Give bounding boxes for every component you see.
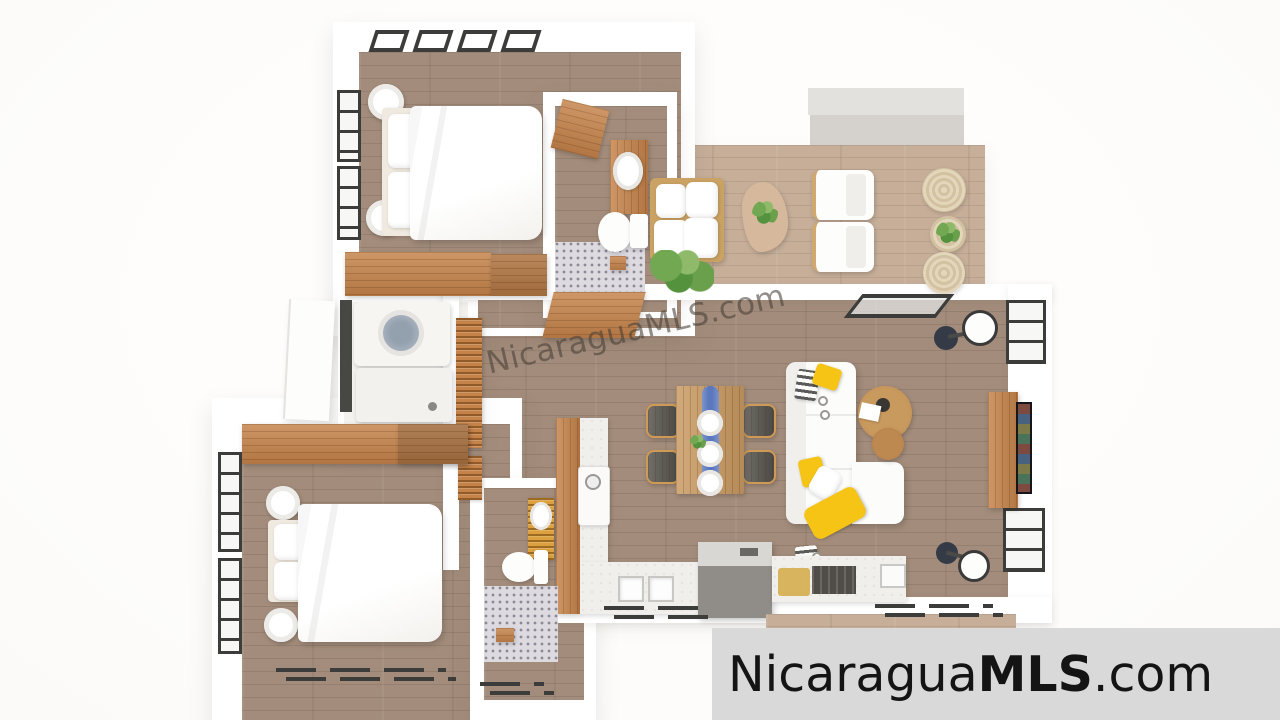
laundry-door-frame bbox=[340, 300, 352, 412]
bed1-duvet bbox=[410, 106, 542, 240]
window-living-right-lower bbox=[1003, 508, 1045, 572]
sink bbox=[530, 502, 552, 530]
toilet-tank bbox=[534, 550, 548, 584]
floor-lamp-shade bbox=[958, 550, 990, 582]
window-living-bottom bbox=[875, 604, 993, 608]
sink bbox=[613, 152, 643, 190]
kitchen-sink bbox=[618, 576, 644, 602]
plate bbox=[697, 410, 723, 436]
shower-floor bbox=[484, 586, 558, 662]
bath-accessory bbox=[610, 256, 626, 270]
bed2-duvet bbox=[298, 504, 442, 642]
logo-mls: MLS bbox=[978, 646, 1093, 703]
window-bedroom2-left-upper bbox=[218, 452, 242, 552]
skylight-window-icon bbox=[412, 30, 453, 52]
floor-plan-render: NicaraguaMLS.com NicaraguaMLS.com bbox=[0, 0, 1280, 720]
site-logo: NicaraguaMLS.com bbox=[712, 628, 1280, 720]
daybed-cushion bbox=[656, 184, 686, 218]
logo-suffix: .com bbox=[1093, 646, 1213, 703]
wardrobe-dark-section bbox=[398, 424, 468, 464]
skylight-window-icon bbox=[456, 30, 497, 52]
wicker-pouf bbox=[923, 252, 965, 294]
daybed-cushion bbox=[686, 182, 718, 218]
island-slot bbox=[740, 548, 758, 556]
table-plant bbox=[752, 200, 778, 226]
kitchen-sink bbox=[648, 576, 674, 602]
window-kitchen-bottom bbox=[604, 606, 700, 610]
dining-chair-seat bbox=[646, 404, 680, 438]
window-bathroom2-bottom bbox=[480, 682, 544, 686]
bath-accessory bbox=[496, 628, 514, 642]
nightstand bbox=[266, 486, 300, 520]
window-bedroom2-bottom bbox=[276, 668, 446, 672]
dresser bbox=[345, 252, 491, 296]
floor-lamp-base bbox=[934, 326, 958, 350]
toilet-tank bbox=[630, 214, 648, 248]
window-bedroom2-left-lower bbox=[218, 558, 242, 654]
plate bbox=[697, 470, 723, 496]
toilet-bowl bbox=[502, 552, 536, 582]
dining-chair-seat bbox=[646, 450, 680, 484]
dining-chair-seat bbox=[742, 450, 776, 484]
stove-burner bbox=[585, 474, 601, 490]
tv-screen bbox=[1016, 402, 1032, 494]
sofa-button bbox=[820, 410, 830, 420]
window-living-right-upper bbox=[1006, 300, 1046, 364]
pouf-plant bbox=[936, 221, 960, 245]
terrace-planter-upper bbox=[808, 88, 964, 115]
glass-door bbox=[844, 294, 955, 318]
nightstand bbox=[264, 608, 298, 642]
table-greenery bbox=[690, 434, 706, 450]
skylight-window-icon bbox=[500, 30, 541, 52]
lounge-chair-backrest bbox=[846, 226, 866, 268]
sofa-button bbox=[818, 396, 828, 406]
prep-sink bbox=[880, 564, 906, 588]
floor-lamp-shade bbox=[962, 310, 998, 346]
shower-floor bbox=[555, 242, 645, 292]
kitchen-island-top bbox=[698, 542, 772, 566]
skylight-window-icon bbox=[368, 30, 409, 52]
terrace-planter-lower bbox=[810, 115, 964, 145]
cooktop bbox=[812, 566, 856, 594]
washer-door-glass bbox=[378, 310, 424, 356]
window-bedroom1-left-lower bbox=[337, 166, 361, 240]
floor-plant bbox=[650, 250, 714, 294]
kitchen-counter-front bbox=[556, 418, 580, 614]
lounge-chair-backrest bbox=[846, 174, 866, 216]
logo-prefix: Nicaragua bbox=[728, 646, 978, 703]
laundry-open-door bbox=[283, 299, 335, 421]
tv-console bbox=[988, 392, 1018, 508]
wicker-pouf bbox=[922, 168, 966, 212]
dresser bbox=[491, 254, 547, 296]
dryer-knob bbox=[428, 402, 437, 411]
dining-chair-seat bbox=[742, 404, 776, 438]
dryer bbox=[356, 368, 452, 422]
toilet-bowl bbox=[598, 212, 632, 252]
round-side-table bbox=[872, 428, 904, 460]
cutting-board bbox=[778, 568, 810, 596]
window-bedroom1-left-upper bbox=[337, 90, 361, 162]
